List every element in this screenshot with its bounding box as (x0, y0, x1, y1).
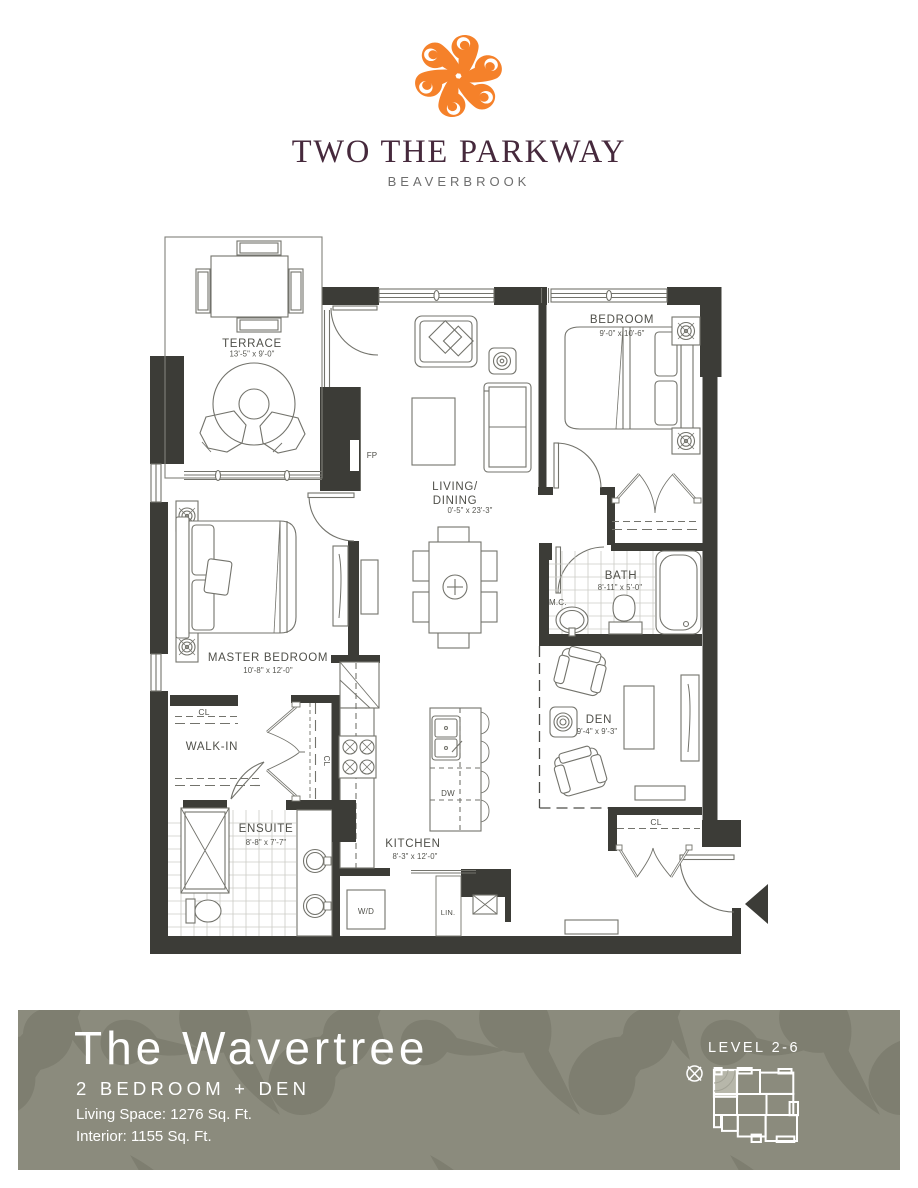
svg-text:8'-8" x 7'-7": 8'-8" x 7'-7" (246, 838, 287, 847)
svg-text:M.C.: M.C. (549, 598, 567, 607)
svg-text:10'-8" x 12'-0": 10'-8" x 12'-0" (243, 666, 293, 675)
svg-text:CL: CL (198, 707, 209, 717)
svg-text:BATH: BATH (605, 570, 638, 582)
svg-text:TWO THE PARKWAY: TWO THE PARKWAY (292, 134, 627, 170)
svg-text:9'-0" x 10'-6": 9'-0" x 10'-6" (599, 329, 644, 338)
svg-text:MASTER BEDROOM: MASTER BEDROOM (208, 652, 328, 664)
svg-text:The Wavertree: The Wavertree (74, 1022, 429, 1074)
svg-text:WALK-IN: WALK-IN (186, 741, 238, 753)
svg-text:CL: CL (322, 756, 331, 767)
svg-text:BEDROOM: BEDROOM (590, 314, 654, 326)
svg-text:BEAVERBROOK: BEAVERBROOK (388, 174, 531, 189)
svg-text:LIN.: LIN. (441, 908, 456, 917)
svg-text:LIVING/: LIVING/ (432, 481, 478, 493)
svg-text:Interior: 1155 Sq. Ft.: Interior: 1155 Sq. Ft. (76, 1128, 212, 1145)
svg-text:TERRACE: TERRACE (222, 338, 282, 350)
svg-text:Living Space: 1276 Sq. Ft.: Living Space: 1276 Sq. Ft. (76, 1106, 252, 1123)
svg-text:DEN: DEN (586, 714, 612, 726)
svg-text:W/D: W/D (358, 907, 374, 916)
svg-text:13'-5" x 9'-0": 13'-5" x 9'-0" (229, 350, 274, 359)
svg-text:CL: CL (650, 817, 661, 827)
svg-text:FP: FP (367, 451, 378, 460)
svg-text:KITCHEN: KITCHEN (385, 838, 440, 850)
svg-text:2 BEDROOM + DEN: 2 BEDROOM + DEN (76, 1078, 310, 1099)
svg-text:8'-11" x 5'-0": 8'-11" x 5'-0" (598, 583, 643, 592)
svg-text:0'-5" x 23'-3": 0'-5" x 23'-3" (447, 506, 492, 515)
svg-text:LEVEL 2-6: LEVEL 2-6 (708, 1040, 800, 1056)
svg-text:ENSUITE: ENSUITE (239, 823, 294, 835)
svg-text:DW: DW (441, 789, 455, 798)
svg-text:8'-3" x 12'-0": 8'-3" x 12'-0" (392, 852, 437, 861)
svg-text:9'-4" x 9'-3": 9'-4" x 9'-3" (577, 727, 618, 736)
